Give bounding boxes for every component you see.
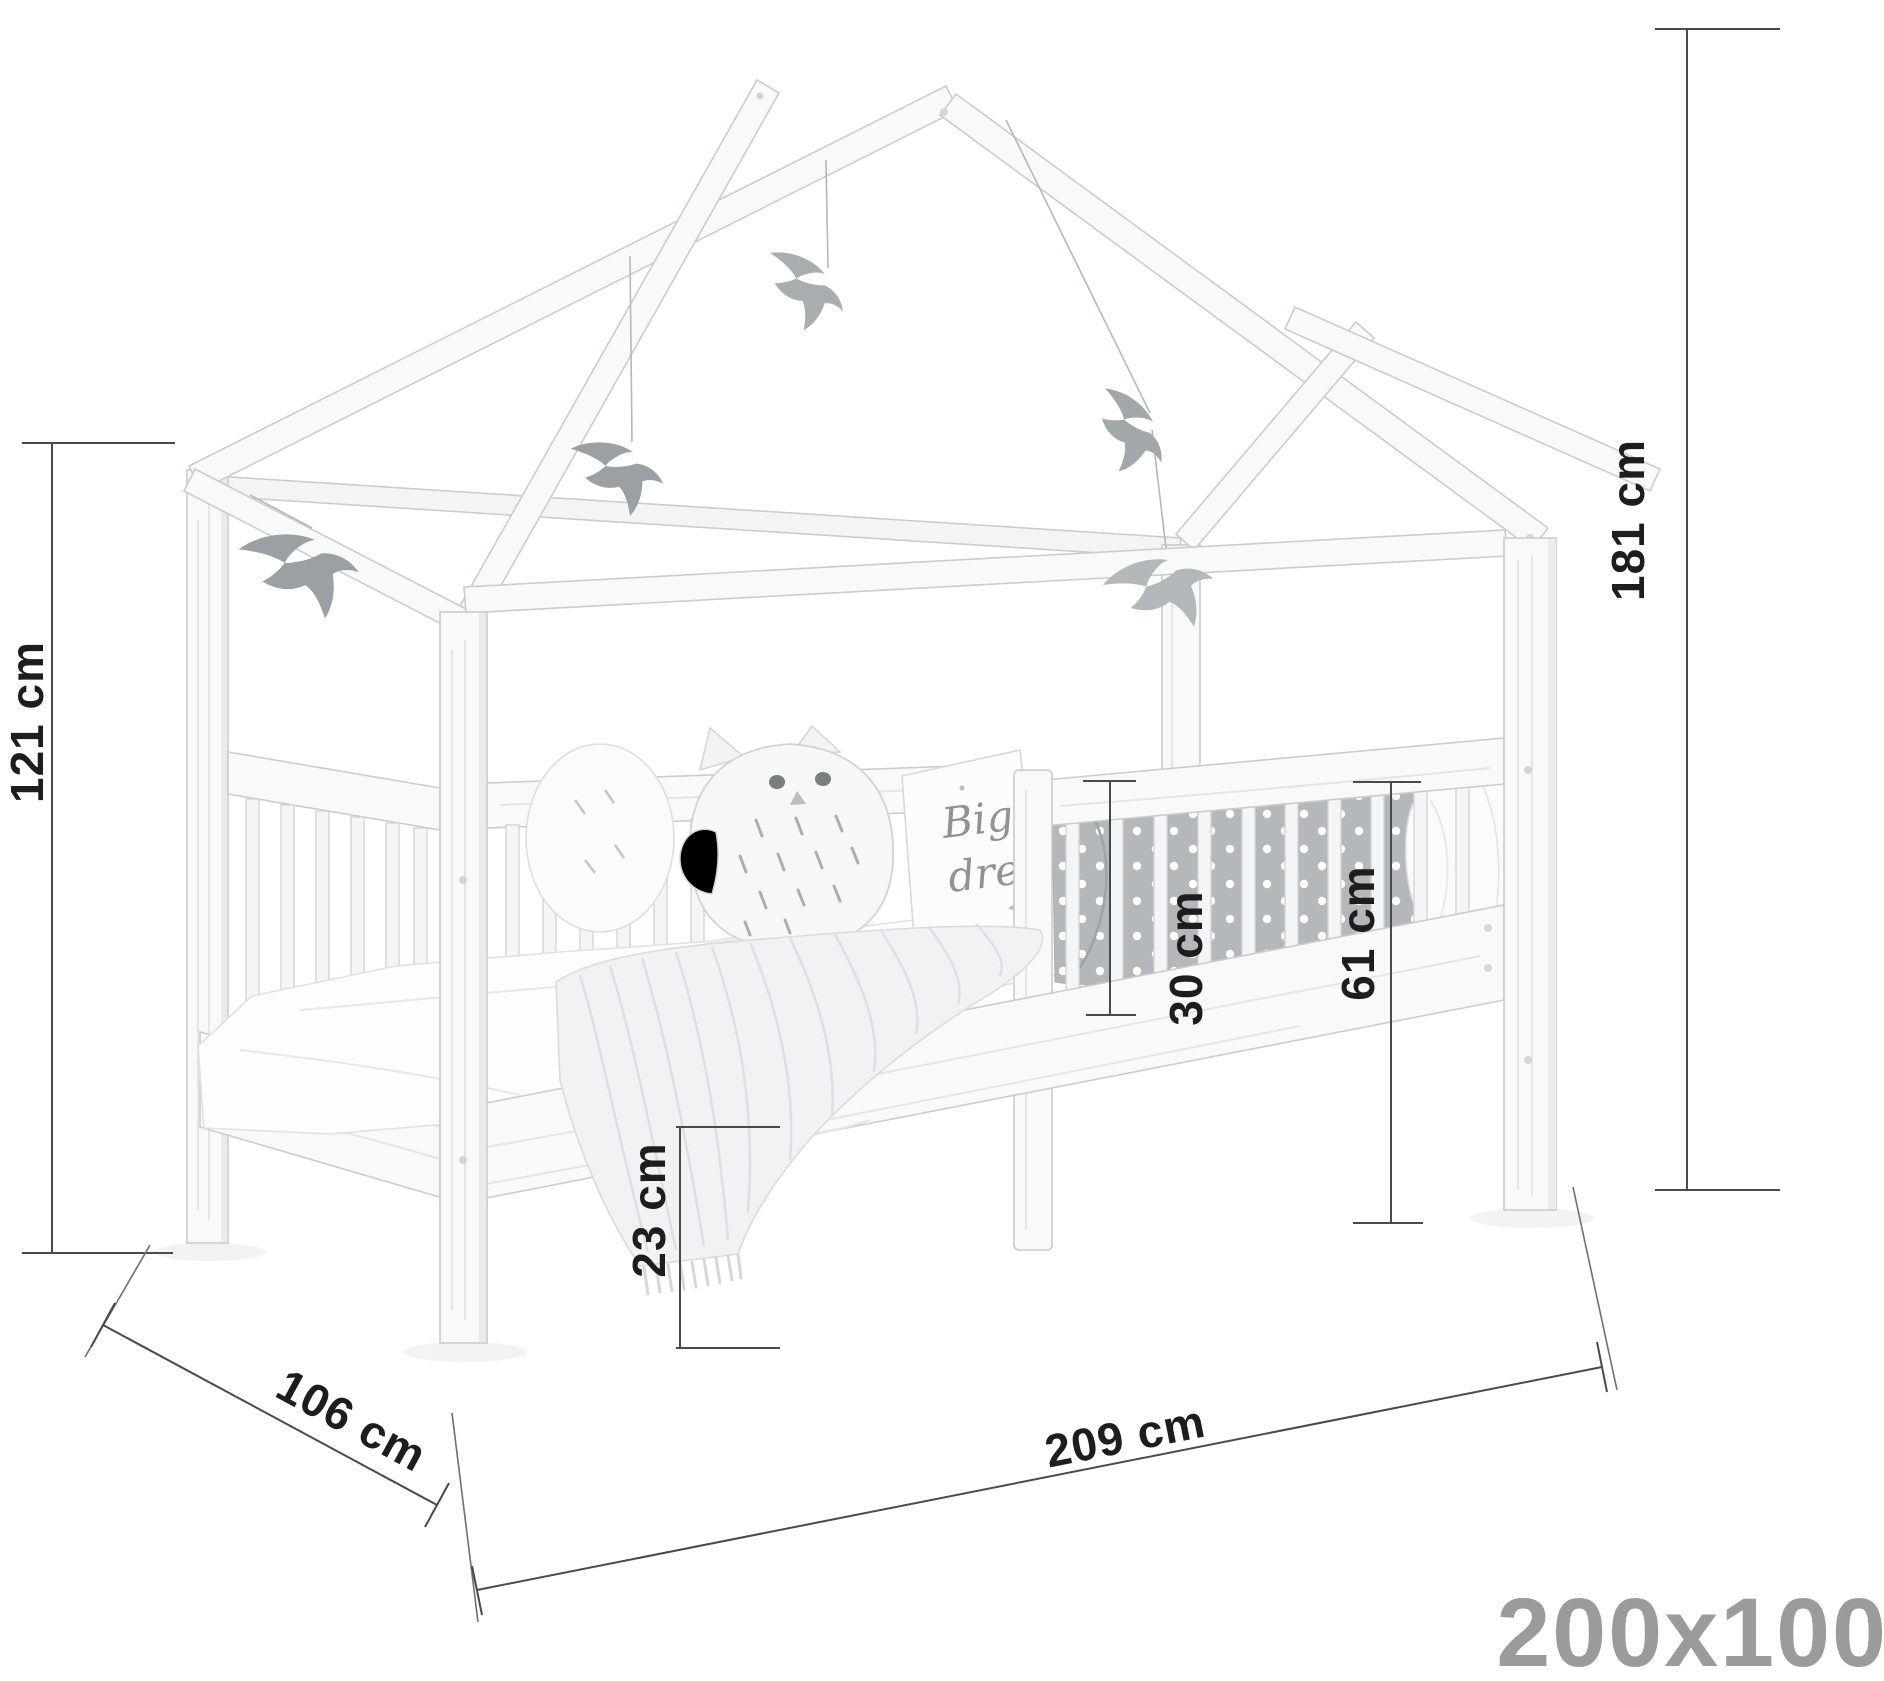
dimension-wall-height: 121 cm: [1, 443, 175, 1253]
front-left-post: [440, 612, 487, 1343]
swallow-icon: [758, 250, 851, 336]
dim-label-total-height: 181 cm: [1602, 439, 1654, 601]
house-bed-dimension-diagram: Big h dream: [0, 0, 1884, 1681]
dim-label-rail-height: 61 cm: [1332, 865, 1384, 1000]
size-label: 200x100: [1496, 1578, 1884, 1681]
roof-frame: [184, 80, 1660, 635]
swallow-icon: [1076, 386, 1180, 486]
headboard-top-rail: [228, 752, 440, 830]
plain-pillow: [526, 744, 674, 932]
dim-label-depth: 106 cm: [268, 1359, 435, 1482]
rear-wall-plate: [213, 476, 1181, 558]
dim-label-wall-height: 121 cm: [1, 641, 53, 803]
dim-label-rail-above-mattress: 30 cm: [1160, 890, 1212, 1025]
dim-label-clearance: 23 cm: [623, 1142, 675, 1277]
diagram-page: Big h dream: [0, 0, 1884, 1681]
dimension-total-height: 181 cm: [1602, 29, 1780, 1190]
dim-label-length: 209 cm: [1040, 1395, 1209, 1478]
owl-pillow: [680, 726, 893, 954]
dimension-depth: 106 cm: [85, 1245, 449, 1527]
front-right-post: [1504, 538, 1556, 1210]
front-left-rafter: [451, 80, 779, 635]
floor-shadows: [154, 1208, 1594, 1362]
